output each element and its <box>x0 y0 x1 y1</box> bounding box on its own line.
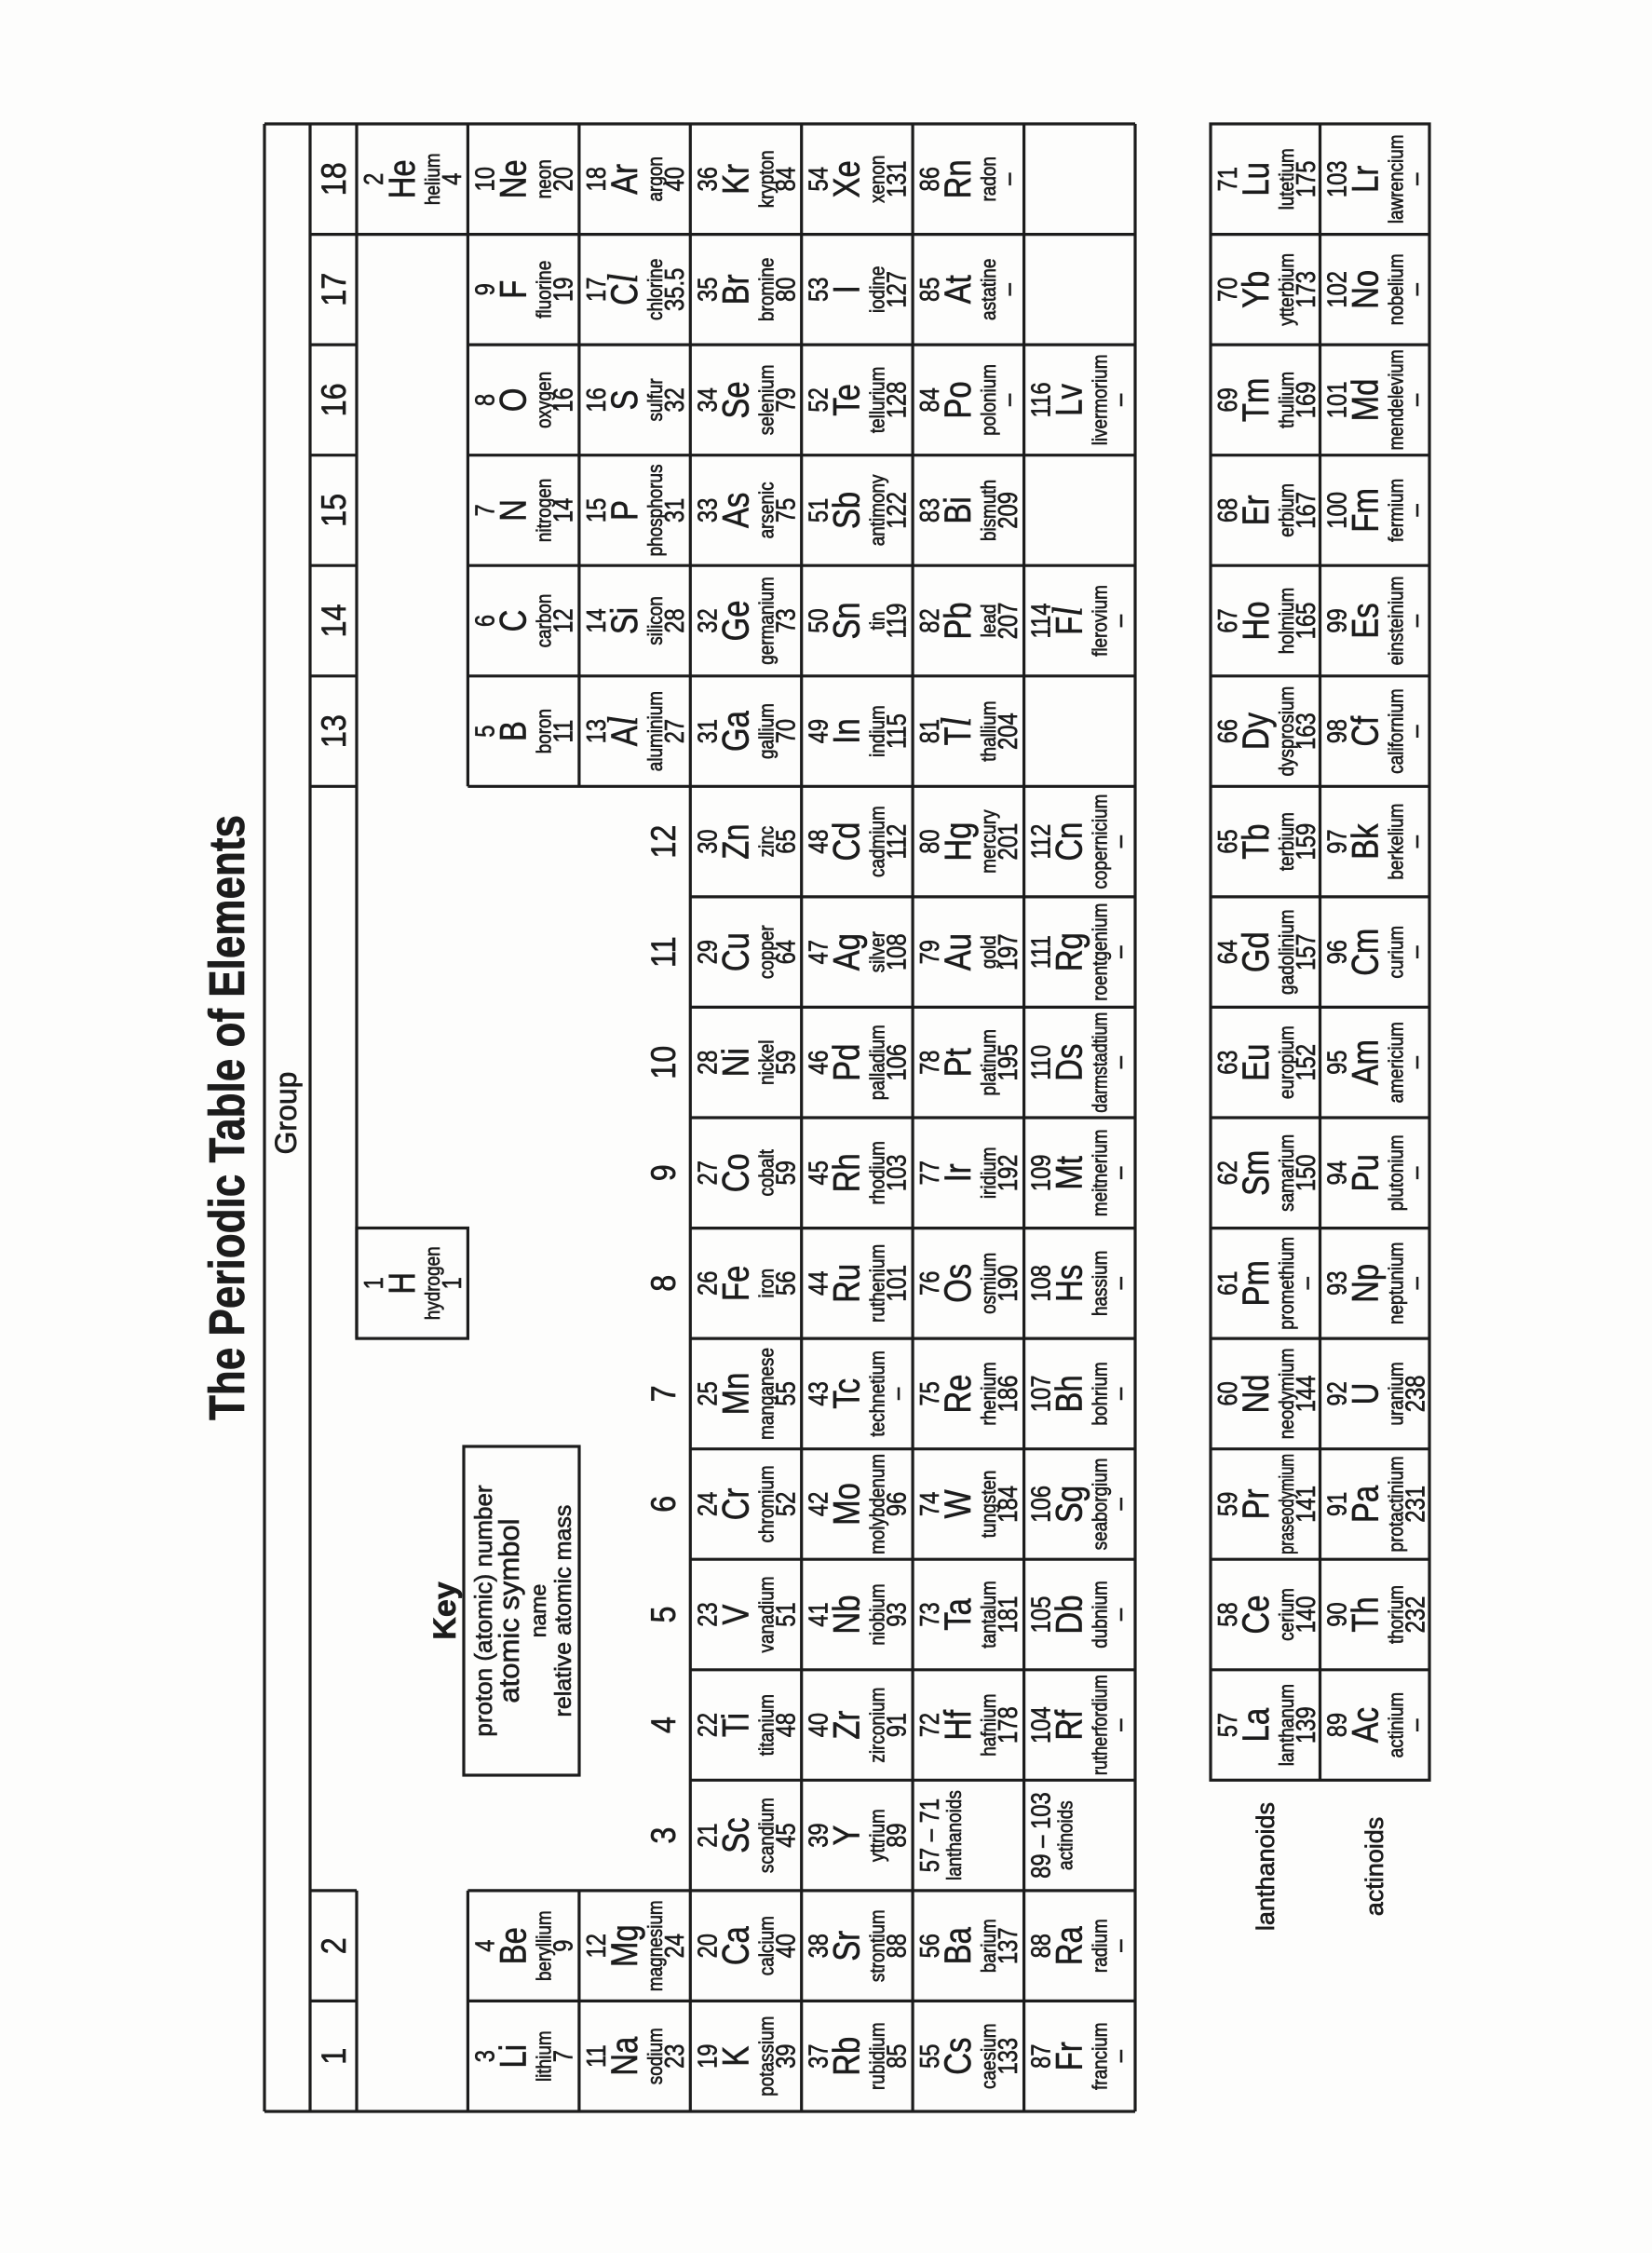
svg-text:20: 20 <box>548 167 578 191</box>
svg-text:Cf: Cf <box>1346 715 1387 747</box>
svg-text:186: 186 <box>994 1376 1023 1413</box>
svg-text:Er: Er <box>1236 495 1277 526</box>
svg-text:Tl: Tl <box>932 717 980 746</box>
svg-text:59: 59 <box>771 1160 801 1185</box>
svg-text:9: 9 <box>644 1164 683 1181</box>
svg-text:89 – 103: 89 – 103 <box>1027 1792 1057 1879</box>
svg-text:Group: Group <box>269 1072 303 1155</box>
svg-text:lanthanoids: lanthanoids <box>942 1790 966 1880</box>
svg-text:45: 45 <box>771 1823 801 1847</box>
svg-text:Pr: Pr <box>1236 1489 1277 1520</box>
svg-text:10: 10 <box>644 1046 683 1079</box>
svg-text:2: 2 <box>315 1937 353 1954</box>
svg-text:Nd: Nd <box>1236 1374 1277 1413</box>
svg-text:40: 40 <box>771 1934 801 1958</box>
svg-text:Rb: Rb <box>827 2037 868 2076</box>
svg-text:8: 8 <box>644 1275 683 1292</box>
svg-text:59: 59 <box>771 1050 801 1074</box>
svg-text:H: H <box>382 1272 423 1295</box>
svg-text:175: 175 <box>1292 160 1321 197</box>
svg-text:Ac: Ac <box>1346 1707 1387 1743</box>
svg-text:–: – <box>1105 1608 1135 1621</box>
svg-text:3: 3 <box>644 1827 683 1844</box>
svg-text:85: 85 <box>883 2044 913 2069</box>
svg-text:89: 89 <box>883 1823 913 1847</box>
svg-text:Pu: Pu <box>1346 1154 1387 1191</box>
svg-text:Es: Es <box>1346 603 1387 638</box>
svg-text:Cr: Cr <box>715 1488 756 1521</box>
svg-text:Xe: Xe <box>827 160 868 197</box>
svg-text:Re: Re <box>938 1374 979 1413</box>
svg-text:238: 238 <box>1401 1376 1431 1413</box>
svg-text:–: – <box>1105 2049 1135 2062</box>
svg-text:80: 80 <box>771 278 801 302</box>
svg-text:P: P <box>604 500 645 521</box>
svg-text:At: At <box>938 275 979 304</box>
svg-text:16: 16 <box>315 383 353 416</box>
svg-text:Bk: Bk <box>1346 823 1387 860</box>
svg-text:27: 27 <box>660 719 690 743</box>
svg-text:14: 14 <box>315 604 353 638</box>
svg-text:Sb: Sb <box>827 492 868 529</box>
svg-text:Si: Si <box>604 607 645 634</box>
svg-text:Md: Md <box>1346 379 1387 422</box>
svg-text:Sc: Sc <box>715 1817 756 1853</box>
svg-text:127: 127 <box>883 271 913 308</box>
svg-text:B: B <box>493 721 534 741</box>
svg-text:–: – <box>1401 172 1431 185</box>
svg-text:12: 12 <box>548 608 578 632</box>
svg-text:13: 13 <box>315 714 353 748</box>
svg-text:Ba: Ba <box>938 1927 979 1965</box>
svg-text:Lr: Lr <box>1346 166 1387 193</box>
svg-text:181: 181 <box>994 1596 1023 1634</box>
svg-text:Db: Db <box>1049 1595 1090 1635</box>
svg-text:Rn: Rn <box>938 159 979 198</box>
svg-text:15: 15 <box>315 494 353 527</box>
svg-text:Br: Br <box>715 274 756 305</box>
svg-text:Fe: Fe <box>715 1266 756 1301</box>
svg-text:lanthanoids: lanthanoids <box>1252 1802 1280 1931</box>
svg-text:Ar: Ar <box>604 164 645 195</box>
svg-text:106: 106 <box>883 1044 913 1081</box>
svg-text:Cl: Cl <box>599 274 646 305</box>
svg-text:Ni: Ni <box>715 1048 756 1077</box>
svg-text:Hf: Hf <box>938 1709 979 1741</box>
svg-text:91: 91 <box>883 1713 913 1737</box>
svg-text:192: 192 <box>994 1154 1023 1191</box>
svg-text:–: – <box>1401 1055 1431 1068</box>
svg-text:Lu: Lu <box>1236 162 1277 197</box>
svg-text:Co: Co <box>715 1153 756 1192</box>
svg-text:141: 141 <box>1292 1486 1321 1523</box>
svg-text:–: – <box>1105 1939 1135 1952</box>
svg-text:Na: Na <box>604 2036 645 2076</box>
svg-text:Hg: Hg <box>938 822 979 862</box>
svg-text:Bi: Bi <box>938 496 979 523</box>
svg-text:11: 11 <box>548 720 578 743</box>
svg-text:39: 39 <box>771 2044 801 2069</box>
svg-text:232: 232 <box>1401 1596 1431 1634</box>
svg-text:Cm: Cm <box>1346 929 1387 976</box>
svg-text:144: 144 <box>1292 1376 1321 1413</box>
svg-text:35.5: 35.5 <box>660 268 690 311</box>
svg-text:84: 84 <box>771 167 801 191</box>
svg-text:–: – <box>994 393 1023 406</box>
svg-text:Ge: Ge <box>715 601 756 642</box>
svg-text:70: 70 <box>771 719 801 743</box>
svg-text:11: 11 <box>644 936 683 968</box>
svg-text:28: 28 <box>660 608 690 632</box>
svg-text:Mg: Mg <box>604 1924 645 1967</box>
svg-text:Cn: Cn <box>1049 822 1090 862</box>
svg-text:Yb: Yb <box>1236 271 1277 308</box>
svg-text:103: 103 <box>883 1154 913 1191</box>
svg-text:Dy: Dy <box>1236 713 1277 750</box>
svg-text:Y: Y <box>827 1825 868 1846</box>
svg-text:1: 1 <box>438 1277 467 1289</box>
svg-text:Tb: Tb <box>1236 823 1277 859</box>
svg-text:137: 137 <box>994 1927 1023 1964</box>
svg-text:190: 190 <box>994 1265 1023 1302</box>
svg-text:7: 7 <box>644 1385 683 1402</box>
svg-text:101: 101 <box>883 1265 913 1302</box>
svg-text:Nb: Nb <box>827 1595 868 1635</box>
svg-text:57 – 71: 57 – 71 <box>915 1798 945 1872</box>
svg-text:Sr: Sr <box>827 1931 868 1961</box>
svg-text:65: 65 <box>771 829 801 853</box>
svg-text:Ag: Ag <box>827 933 868 970</box>
svg-text:V: V <box>715 1604 756 1624</box>
svg-text:–: – <box>1105 1718 1135 1731</box>
svg-text:–: – <box>1401 614 1431 627</box>
svg-text:Ta: Ta <box>938 1598 979 1631</box>
svg-text:32: 32 <box>660 387 690 412</box>
svg-text:201: 201 <box>994 823 1023 861</box>
svg-text:52: 52 <box>771 1492 801 1516</box>
svg-text:Pb: Pb <box>938 602 979 639</box>
svg-text:He: He <box>382 159 423 198</box>
svg-text:–: – <box>1401 725 1431 738</box>
svg-text:Ds: Ds <box>1049 1044 1090 1081</box>
svg-text:–: – <box>1401 1718 1431 1731</box>
svg-text:–: – <box>1401 1276 1431 1289</box>
svg-text:–: – <box>1105 835 1135 848</box>
svg-text:Sm: Sm <box>1236 1150 1277 1196</box>
svg-text:Fm: Fm <box>1346 488 1387 532</box>
svg-text:O: O <box>493 388 534 413</box>
svg-text:1: 1 <box>315 2048 353 2065</box>
svg-text:Sn: Sn <box>827 602 868 639</box>
svg-text:64: 64 <box>771 940 801 964</box>
svg-text:As: As <box>715 493 756 528</box>
svg-text:Ce: Ce <box>1236 1595 1277 1635</box>
svg-text:–: – <box>1292 1276 1321 1289</box>
svg-text:Zr: Zr <box>827 1711 868 1740</box>
svg-text:51: 51 <box>771 1602 801 1626</box>
svg-text:184: 184 <box>994 1486 1023 1523</box>
svg-text:Fr: Fr <box>1049 2042 1090 2070</box>
svg-text:75: 75 <box>771 498 801 523</box>
svg-text:Cu: Cu <box>715 932 756 971</box>
svg-text:56: 56 <box>771 1271 801 1296</box>
svg-text:Ho: Ho <box>1236 602 1277 641</box>
svg-text:122: 122 <box>883 492 913 529</box>
svg-text:Pd: Pd <box>827 1044 868 1081</box>
svg-text:–: – <box>1401 835 1431 848</box>
svg-text:N: N <box>493 499 534 522</box>
svg-text:173: 173 <box>1292 271 1321 308</box>
svg-text:79: 79 <box>771 387 801 412</box>
svg-text:Ti: Ti <box>715 1713 756 1737</box>
svg-text:Po: Po <box>938 381 979 418</box>
svg-text:23: 23 <box>660 2044 690 2069</box>
svg-text:Tm: Tm <box>1236 378 1277 422</box>
svg-text:128: 128 <box>883 382 913 419</box>
svg-text:Gd: Gd <box>1236 931 1277 972</box>
svg-text:–: – <box>1105 614 1135 627</box>
svg-text:19: 19 <box>548 278 578 302</box>
svg-text:169: 169 <box>1292 382 1321 419</box>
svg-text:Cs: Cs <box>938 2038 979 2075</box>
svg-text:48: 48 <box>771 1713 801 1737</box>
svg-text:Eu: Eu <box>1236 1044 1277 1081</box>
svg-text:6: 6 <box>644 1496 683 1513</box>
svg-text:Bh: Bh <box>1049 1375 1090 1412</box>
svg-text:Mt: Mt <box>1049 1156 1090 1189</box>
svg-text:152: 152 <box>1292 1044 1321 1081</box>
svg-text:atomic symbol: atomic symbol <box>493 1518 525 1703</box>
svg-text:167: 167 <box>1292 492 1321 529</box>
svg-text:Os: Os <box>938 1264 979 1303</box>
svg-text:Ga: Ga <box>715 711 756 752</box>
svg-text:K: K <box>715 2045 756 2066</box>
svg-text:W: W <box>938 1489 979 1518</box>
svg-text:150: 150 <box>1292 1154 1321 1191</box>
svg-text:Cd: Cd <box>827 822 868 862</box>
svg-text:name: name <box>526 1584 550 1638</box>
svg-text:–: – <box>1401 945 1431 958</box>
svg-text:165: 165 <box>1292 603 1321 640</box>
svg-text:–: – <box>1105 1166 1135 1179</box>
svg-text:197: 197 <box>994 933 1023 970</box>
svg-text:The Periodic Table of Elements: The Periodic Table of Elements <box>199 815 255 1420</box>
svg-text:Au: Au <box>938 933 979 970</box>
svg-text:133: 133 <box>994 2038 1023 2075</box>
svg-text:17: 17 <box>315 273 353 306</box>
svg-text:No: No <box>1346 270 1387 309</box>
svg-text:Pt: Pt <box>938 1048 979 1077</box>
svg-text:157: 157 <box>1292 933 1321 970</box>
svg-text:24: 24 <box>660 1934 690 1958</box>
svg-text:55: 55 <box>771 1381 801 1405</box>
svg-text:–: – <box>994 172 1023 185</box>
svg-text:18: 18 <box>315 162 353 196</box>
svg-text:Tc: Tc <box>827 1378 868 1409</box>
svg-text:U: U <box>1346 1383 1387 1405</box>
svg-text:Hs: Hs <box>1049 1265 1090 1302</box>
svg-text:–: – <box>1105 1276 1135 1289</box>
svg-text:Ra: Ra <box>1049 1926 1090 1966</box>
svg-text:–: – <box>1105 1498 1135 1511</box>
svg-text:7: 7 <box>548 2050 578 2062</box>
svg-text:112: 112 <box>883 824 913 860</box>
svg-text:Am: Am <box>1346 1039 1387 1085</box>
svg-text:Te: Te <box>827 384 868 416</box>
svg-text:Pm: Pm <box>1236 1260 1277 1306</box>
svg-text:Mo: Mo <box>827 1483 868 1526</box>
svg-text:Rf: Rf <box>1049 1709 1090 1741</box>
svg-text:4: 4 <box>438 173 467 185</box>
svg-text:Be: Be <box>493 1927 534 1964</box>
svg-text:–: – <box>1105 393 1135 406</box>
svg-text:In: In <box>827 718 868 743</box>
svg-text:31: 31 <box>660 498 690 523</box>
svg-text:Rg: Rg <box>1049 932 1090 971</box>
svg-text:Mn: Mn <box>715 1373 756 1416</box>
svg-text:relative atomic mass: relative atomic mass <box>550 1505 576 1717</box>
svg-text:12: 12 <box>644 825 683 859</box>
svg-text:C: C <box>493 610 534 632</box>
svg-text:Key: Key <box>427 1581 463 1639</box>
svg-text:Lv: Lv <box>1049 384 1090 416</box>
svg-text:40: 40 <box>660 167 690 191</box>
svg-text:Fl: Fl <box>1044 606 1091 635</box>
svg-text:4: 4 <box>644 1717 683 1733</box>
svg-text:209: 209 <box>994 492 1023 529</box>
svg-text:204: 204 <box>994 713 1023 750</box>
svg-text:139: 139 <box>1292 1706 1321 1744</box>
svg-text:119: 119 <box>883 604 913 639</box>
svg-text:178: 178 <box>994 1706 1023 1744</box>
svg-text:S: S <box>604 389 645 410</box>
svg-text:–: – <box>1401 1166 1431 1179</box>
svg-text:73: 73 <box>771 608 801 632</box>
svg-text:195: 195 <box>994 1044 1023 1081</box>
svg-text:163: 163 <box>1292 713 1321 750</box>
svg-text:–: – <box>1401 282 1431 295</box>
svg-text:Ir: Ir <box>938 1163 979 1182</box>
svg-text:159: 159 <box>1292 823 1321 861</box>
svg-text:207: 207 <box>994 603 1023 640</box>
svg-text:Se: Se <box>715 381 756 418</box>
svg-text:131: 131 <box>883 160 913 197</box>
svg-text:Sg: Sg <box>1049 1486 1090 1523</box>
svg-text:I: I <box>827 285 868 293</box>
svg-text:Th: Th <box>1346 1596 1387 1632</box>
svg-text:–: – <box>1401 393 1431 406</box>
svg-text:Np: Np <box>1346 1264 1387 1303</box>
svg-text:La: La <box>1236 1707 1277 1742</box>
svg-text:5: 5 <box>644 1607 683 1623</box>
svg-text:108: 108 <box>883 933 913 970</box>
svg-text:93: 93 <box>883 1602 913 1626</box>
svg-text:–: – <box>1105 1055 1135 1068</box>
svg-text:96: 96 <box>883 1492 913 1516</box>
svg-text:Li: Li <box>493 2044 534 2069</box>
svg-text:F: F <box>493 280 534 299</box>
svg-text:88: 88 <box>883 1934 913 1958</box>
svg-text:140: 140 <box>1292 1596 1321 1634</box>
svg-text:–: – <box>1105 945 1135 958</box>
svg-text:Ru: Ru <box>827 1264 868 1303</box>
svg-text:9: 9 <box>548 1940 578 1952</box>
svg-text:115: 115 <box>883 713 913 749</box>
svg-text:actinoids: actinoids <box>1361 1817 1388 1917</box>
svg-text:231: 231 <box>1401 1486 1431 1523</box>
svg-text:–: – <box>1401 504 1431 517</box>
svg-text:–: – <box>883 1387 913 1400</box>
svg-text:–: – <box>1105 1387 1135 1400</box>
svg-text:Rh: Rh <box>827 1153 868 1192</box>
svg-text:16: 16 <box>548 387 578 412</box>
svg-text:–: – <box>994 282 1023 295</box>
svg-text:Kr: Kr <box>715 164 756 195</box>
svg-text:actinoids: actinoids <box>1054 1800 1077 1870</box>
svg-text:14: 14 <box>548 498 578 523</box>
svg-text:Ne: Ne <box>493 159 534 198</box>
svg-text:Pa: Pa <box>1346 1485 1387 1523</box>
svg-text:Zn: Zn <box>715 823 756 859</box>
svg-text:Ca: Ca <box>715 1926 756 1966</box>
svg-text:Al: Al <box>599 716 646 746</box>
